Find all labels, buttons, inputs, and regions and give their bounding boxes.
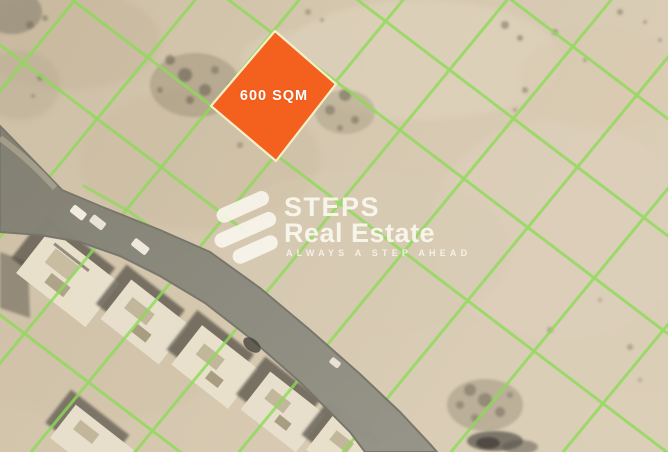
listing-map: 600 SQM STEPS Real Estate ALWAYS A STEP … — [0, 0, 668, 452]
plot-area-label: 600 SQM — [240, 88, 308, 104]
satellite-map-image — [0, 0, 668, 452]
